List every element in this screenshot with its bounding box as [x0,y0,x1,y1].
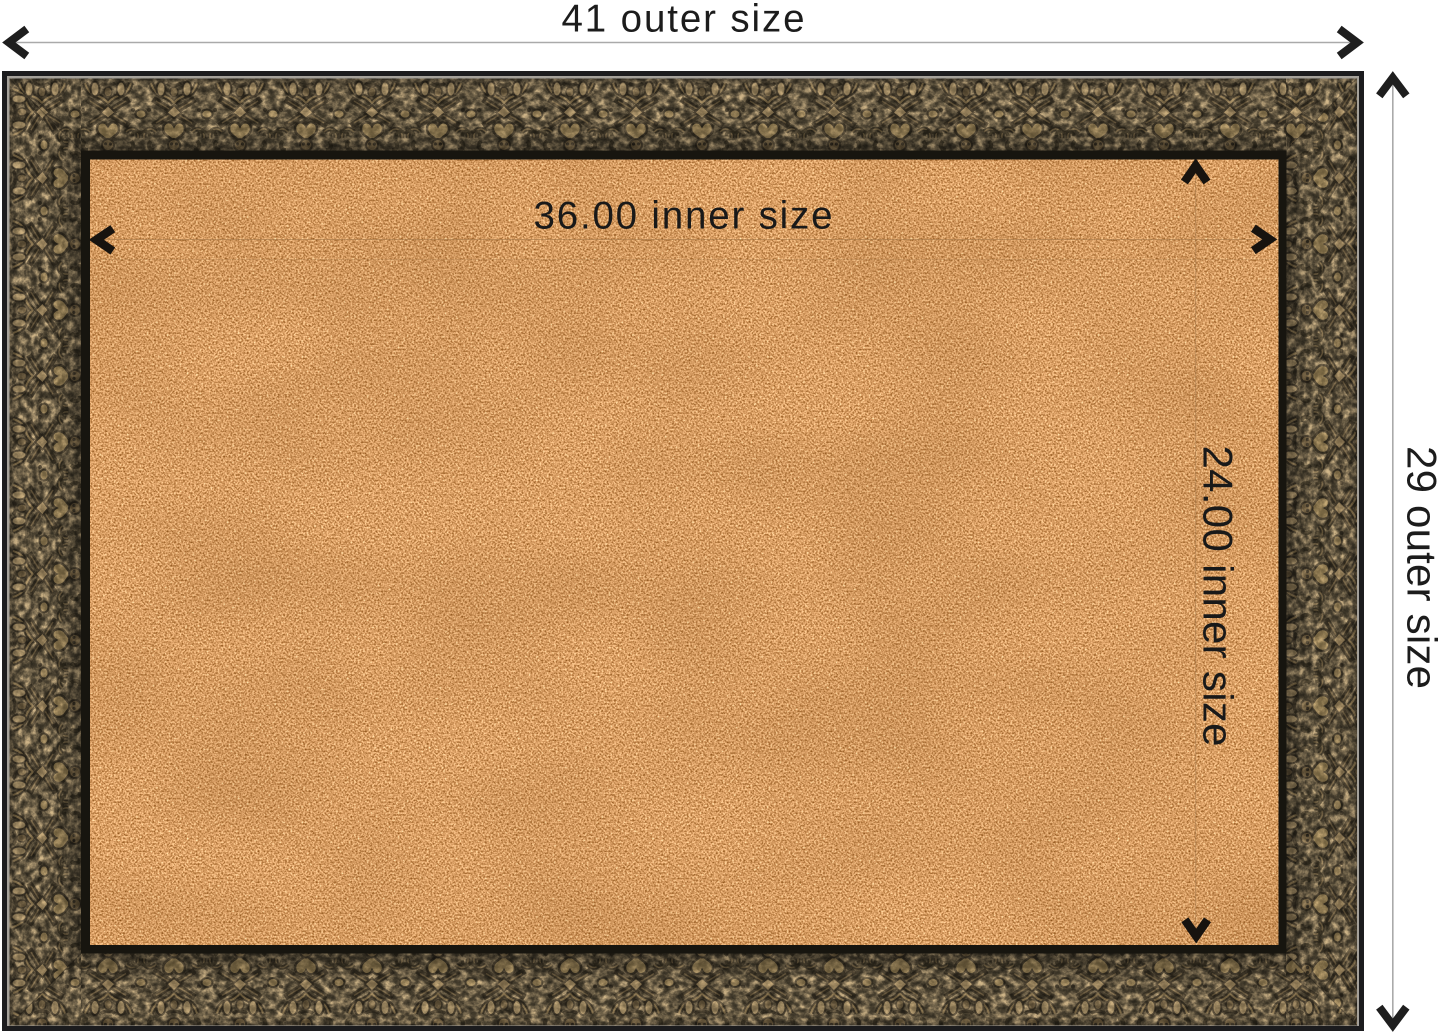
svg-text:24.00 inner size: 24.00 inner size [1195,446,1242,747]
svg-text:41 outer size: 41 outer size [562,0,805,41]
svg-text:29 outer size: 29 outer size [1399,446,1445,689]
